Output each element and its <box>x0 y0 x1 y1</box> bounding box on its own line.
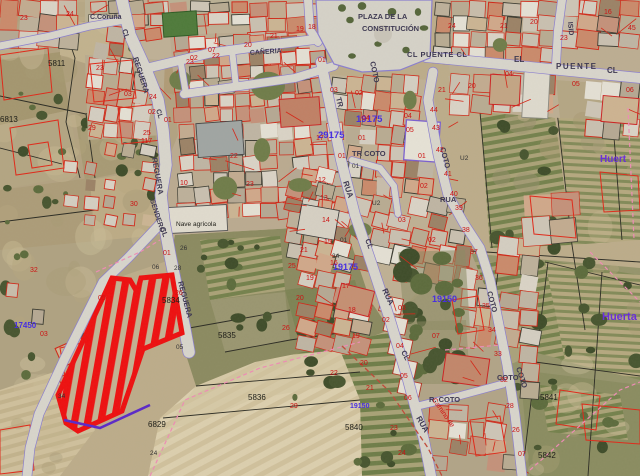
svg-text:34: 34 <box>332 253 340 260</box>
svg-text:23: 23 <box>20 15 28 22</box>
svg-text:117: 117 <box>141 138 152 145</box>
svg-text:17: 17 <box>316 135 324 142</box>
svg-text:30: 30 <box>130 201 138 208</box>
svg-text:01: 01 <box>340 237 348 244</box>
svg-text:35: 35 <box>482 303 490 310</box>
svg-text:17450: 17450 <box>14 321 37 330</box>
svg-text:19150: 19150 <box>432 294 457 304</box>
svg-text:44: 44 <box>430 107 438 114</box>
svg-text:U2: U2 <box>372 200 381 207</box>
svg-text:19: 19 <box>352 333 360 340</box>
svg-text:39: 39 <box>455 205 463 212</box>
svg-text:CL PUENTE CL: CL PUENTE CL <box>407 50 467 59</box>
svg-text:26: 26 <box>512 427 520 434</box>
svg-text:5841: 5841 <box>540 393 558 402</box>
svg-text:28: 28 <box>174 265 182 272</box>
svg-text:21: 21 <box>366 385 374 392</box>
svg-text:23: 23 <box>96 65 104 72</box>
svg-text:20: 20 <box>468 83 476 90</box>
svg-text:18: 18 <box>308 24 316 31</box>
svg-text:04: 04 <box>505 71 513 78</box>
svg-text:32: 32 <box>500 377 508 384</box>
svg-text:14: 14 <box>322 217 330 224</box>
svg-text:41: 41 <box>444 171 452 178</box>
svg-text:05: 05 <box>98 295 106 302</box>
svg-text:06: 06 <box>626 87 634 94</box>
svg-text:38: 38 <box>462 227 470 234</box>
svg-text:37: 37 <box>470 249 478 256</box>
svg-text:12: 12 <box>318 177 326 184</box>
svg-text:5835: 5835 <box>218 331 236 340</box>
svg-text:07: 07 <box>432 333 440 340</box>
svg-text:Nave agrícola: Nave agrícola <box>176 221 216 228</box>
svg-text:TR COTO: TR COTO <box>352 149 386 158</box>
svg-text:02: 02 <box>148 109 156 116</box>
svg-text:01: 01 <box>358 135 366 142</box>
svg-text:25: 25 <box>143 130 151 137</box>
svg-text:6829: 6829 <box>148 420 166 429</box>
svg-text:26: 26 <box>175 290 183 297</box>
svg-text:24: 24 <box>150 450 158 457</box>
svg-text:5840: 5840 <box>345 423 363 432</box>
svg-text:02: 02 <box>428 237 436 244</box>
svg-text:01: 01 <box>418 153 426 160</box>
svg-text:34: 34 <box>58 393 66 400</box>
svg-text:29: 29 <box>88 125 96 132</box>
svg-text:07: 07 <box>518 451 526 458</box>
svg-text:05: 05 <box>572 81 580 88</box>
svg-text:20: 20 <box>530 19 538 26</box>
svg-text:26: 26 <box>282 325 290 332</box>
svg-text:04: 04 <box>396 343 404 350</box>
svg-text:05: 05 <box>400 373 408 380</box>
svg-text:24: 24 <box>149 94 157 101</box>
svg-text:20: 20 <box>296 295 304 302</box>
svg-text:25: 25 <box>288 263 296 270</box>
svg-text:33: 33 <box>494 351 502 358</box>
svg-text:34: 34 <box>488 327 496 334</box>
svg-text:22: 22 <box>212 53 220 60</box>
svg-text:02: 02 <box>420 183 428 190</box>
svg-text:06: 06 <box>152 264 160 271</box>
svg-text:01: 01 <box>338 153 346 160</box>
svg-text:15: 15 <box>324 239 332 246</box>
svg-text:13: 13 <box>320 195 328 202</box>
svg-text:42: 42 <box>436 147 444 154</box>
svg-text:24: 24 <box>448 23 456 30</box>
svg-text:EL: EL <box>514 55 524 64</box>
svg-text:02: 02 <box>382 317 390 324</box>
svg-text:29: 29 <box>290 403 298 410</box>
svg-text:5842: 5842 <box>538 451 556 460</box>
svg-text:03: 03 <box>124 91 132 98</box>
svg-text:03: 03 <box>40 331 48 338</box>
svg-text:10: 10 <box>180 180 188 187</box>
svg-text:24: 24 <box>398 450 406 457</box>
svg-text:U2: U2 <box>460 155 469 162</box>
svg-text:18: 18 <box>348 307 356 314</box>
svg-text:PUENTE: PUENTE <box>556 62 597 71</box>
svg-text:40: 40 <box>450 191 458 198</box>
svg-text:19150: 19150 <box>350 403 370 410</box>
svg-text:02: 02 <box>190 55 198 62</box>
svg-text:21: 21 <box>300 247 308 254</box>
svg-text:32: 32 <box>30 267 38 274</box>
svg-text:02: 02 <box>355 90 363 97</box>
svg-text:23: 23 <box>560 35 568 42</box>
svg-text:19: 19 <box>296 26 304 33</box>
svg-text:Huert: Huert <box>600 154 627 165</box>
svg-text:16: 16 <box>330 260 338 267</box>
svg-text:Huerta: Huerta <box>602 311 638 323</box>
svg-text:19: 19 <box>306 275 314 282</box>
svg-text:36: 36 <box>475 275 483 282</box>
svg-text:04: 04 <box>404 113 412 120</box>
svg-text:05: 05 <box>406 127 414 134</box>
svg-text:5836: 5836 <box>248 393 266 402</box>
svg-text:21: 21 <box>438 87 446 94</box>
svg-text:01: 01 <box>318 57 326 64</box>
svg-text:03: 03 <box>398 305 406 312</box>
svg-text:24: 24 <box>66 11 74 18</box>
svg-text:26: 26 <box>180 245 188 252</box>
svg-text:17: 17 <box>342 283 350 290</box>
svg-text:23: 23 <box>246 181 254 188</box>
svg-text:16: 16 <box>604 9 612 16</box>
svg-text:01: 01 <box>163 250 171 257</box>
svg-text:ISID: ISID <box>566 22 574 36</box>
svg-text:07: 07 <box>208 47 216 54</box>
svg-text:03: 03 <box>330 87 338 94</box>
svg-text:21: 21 <box>270 33 278 40</box>
svg-text:CONSTITUCIÓN: CONSTITUCIÓN <box>362 24 419 33</box>
svg-text:01: 01 <box>352 163 360 170</box>
svg-text:22: 22 <box>230 153 238 160</box>
svg-text:5811: 5811 <box>48 59 66 68</box>
svg-text:01: 01 <box>164 117 172 124</box>
svg-text:28: 28 <box>506 403 514 410</box>
svg-text:23: 23 <box>390 425 398 432</box>
svg-text:43: 43 <box>432 125 440 132</box>
svg-text:04: 04 <box>362 115 370 122</box>
svg-text:06: 06 <box>404 395 412 402</box>
svg-text:03: 03 <box>398 217 406 224</box>
svg-text:22: 22 <box>330 370 338 377</box>
svg-text:PLAZA DE LA: PLAZA DE LA <box>358 12 408 21</box>
svg-text:45: 45 <box>628 25 636 32</box>
svg-text:C.Coruña: C.Coruña <box>90 14 122 21</box>
svg-text:20: 20 <box>244 42 252 49</box>
svg-text:21: 21 <box>500 23 508 30</box>
svg-text:CL: CL <box>607 66 618 75</box>
svg-text:6813: 6813 <box>0 115 18 124</box>
svg-text:05: 05 <box>176 344 184 351</box>
svg-text:5834: 5834 <box>162 296 180 305</box>
svg-text:20: 20 <box>360 360 368 367</box>
